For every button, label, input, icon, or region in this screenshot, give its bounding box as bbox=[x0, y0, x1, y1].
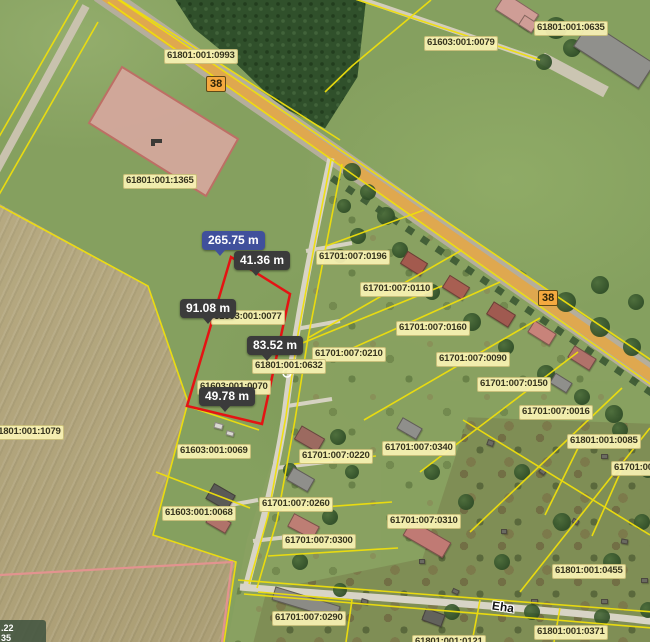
measurement-segment-label: 91.08 m bbox=[180, 299, 236, 318]
measurement-pointer bbox=[214, 249, 226, 256]
measurement-pointer bbox=[261, 354, 273, 361]
measurement-total-label: 265.75 m bbox=[202, 231, 265, 250]
coordinate-line-1: .22 bbox=[1, 623, 46, 633]
measurement-segment-label: 49.78 m bbox=[199, 387, 255, 406]
measurement-pointer bbox=[219, 405, 231, 412]
measurement-segment-label: 41.36 m bbox=[234, 251, 290, 270]
measurement-segment-label: 83.52 m bbox=[247, 336, 303, 355]
measurement-pointer bbox=[202, 317, 214, 324]
coordinate-readout: .22 35 bbox=[0, 620, 46, 642]
measurement-labels-layer: 265.75 m41.36 m91.08 m83.52 m49.78 m bbox=[0, 0, 650, 642]
coordinate-line-2: 35 bbox=[1, 633, 46, 642]
measurement-pointer bbox=[250, 269, 262, 276]
map-viewport[interactable]: 61801:001:099361603:001:007961801:001:06… bbox=[0, 0, 650, 642]
